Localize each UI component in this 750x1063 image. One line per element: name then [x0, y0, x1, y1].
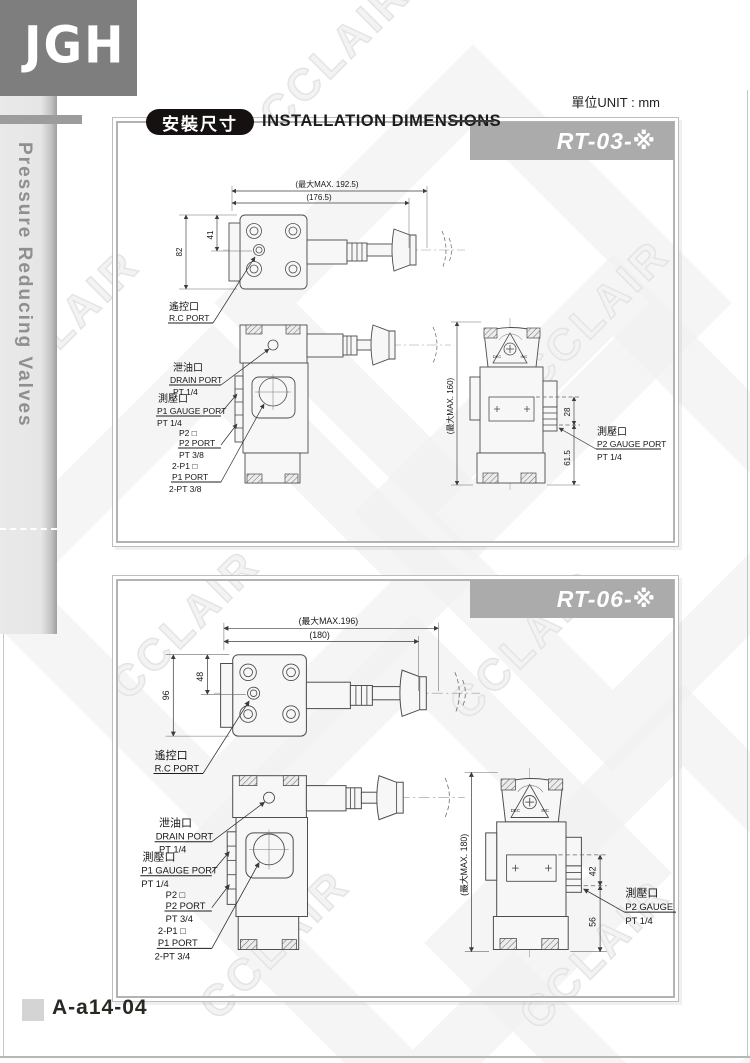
- dim-max-height: (最大MAX. 180): [458, 834, 469, 896]
- logo: JGH: [24, 16, 125, 75]
- p2-gauge-label-zh: 測壓口: [597, 425, 627, 438]
- dim-height-2: 41: [206, 230, 215, 239]
- doc-number: A-a14-04: [52, 996, 148, 1020]
- knob-dec-label: DEC: [493, 354, 502, 359]
- dim-port-offset: 42: [588, 866, 598, 876]
- panel-rt03: RT-03-※: [112, 117, 679, 547]
- dim-max-height: (最大MAX. 160): [445, 377, 455, 434]
- side-view: DEC INC: [445, 318, 666, 490]
- p1-port-size: 2-PT 3/4: [155, 951, 191, 961]
- p2-port-label-sym: P2 □: [179, 428, 197, 438]
- p2-gauge-size: PT 1/4: [625, 916, 652, 926]
- doc-number-marker: [22, 999, 44, 1021]
- technical-drawing: (最大MAX. 192.5) (176.5) 82 41 遙控口 R.C POR…: [113, 118, 676, 539]
- p1-port-size: 2-PT 3/8: [169, 484, 202, 494]
- drain-port-label-en: DRAIN PORT: [170, 375, 222, 385]
- page-right-rule: [747, 90, 748, 1057]
- dim-port-offset: 28: [563, 407, 572, 416]
- front-view: 泄油口 DRAIN PORT PT 1/4 測壓口 P1 GAUGE PORT …: [156, 325, 451, 494]
- unit-label: 單位UNIT : mm: [520, 92, 660, 111]
- section-title-pill: 安裝尺寸: [146, 109, 254, 135]
- p1-gauge-size: PT 1/4: [141, 879, 168, 889]
- p2-port-label-en: P2 PORT: [166, 901, 206, 911]
- knob-dec-label: DEC: [511, 808, 520, 813]
- dim-max-width: (最大MAX.196): [299, 615, 359, 626]
- top-view: (最大MAX. 192.5) (176.5) 82 41 遙控口 R.C POR…: [168, 179, 465, 323]
- dim-max-width: (最大MAX. 192.5): [295, 179, 358, 189]
- side-view: DEC INC: [458, 768, 676, 957]
- p1-gauge-size: PT 1/4: [157, 418, 182, 428]
- sidebar-category-title: Pressure Reducing Valves: [13, 142, 35, 428]
- p1-gauge-label-en: P1 GAUGE PORT: [141, 866, 217, 876]
- catalog-page: CCLAIR CCLAIR CCLAIR CCLAIR CCLAIR CCLAI…: [0, 0, 750, 1063]
- dim-height-2: 48: [195, 672, 205, 682]
- logo-box: JGH: [0, 0, 137, 96]
- p1-port-label-en: P1 PORT: [158, 938, 198, 948]
- drawing-root: (最大MAX. 192.5) (176.5) 82 41 遙控口 R.C POR…: [156, 179, 666, 494]
- p1-port-label-sym: 2-P1 □: [172, 461, 197, 471]
- dim-port-height: 56: [588, 917, 598, 927]
- p2-port-size: PT 3/8: [179, 450, 204, 460]
- drawing-root: (最大MAX.196) (180) 96 48 遙控口 R.C PORT: [140, 615, 676, 962]
- p1-gauge-label-en: P1 GAUGE PORT: [157, 406, 226, 416]
- technical-drawing: (最大MAX.196) (180) 96 48 遙控口 R.C PORT: [113, 576, 676, 1001]
- drain-port-label-en: DRAIN PORT: [156, 832, 214, 842]
- p2-port-size: PT 3/4: [166, 914, 193, 924]
- p1-gauge-label-zh: 測壓口: [158, 392, 188, 405]
- panel-rt06: RT-06-※: [112, 575, 679, 1002]
- rc-port-label-en: R.C PORT: [169, 313, 209, 323]
- p2-port-label-en: P2 PORT: [179, 438, 215, 448]
- p2-gauge-label-en: P2 GAUGE PORT: [597, 439, 666, 449]
- p1-port-label-en: P1 PORT: [172, 472, 208, 482]
- rc-port-label-zh: 遙控口: [169, 300, 199, 313]
- title-connector-line: [450, 120, 494, 122]
- p2-gauge-label-en: P2 GAUGE PORT: [625, 902, 676, 912]
- knob-inc-label: INC: [541, 808, 549, 813]
- sidebar-top-bar: [0, 115, 82, 124]
- p2-gauge-label-zh: 測壓口: [625, 886, 658, 900]
- p2-gauge-size: PT 1/4: [597, 452, 622, 462]
- dim-width: (176.5): [306, 193, 332, 202]
- sidebar-dashed-divider: [0, 528, 57, 530]
- rc-port-label-zh: 遙控口: [155, 748, 188, 762]
- dim-port-height: 61.5: [563, 450, 572, 466]
- top-view: (最大MAX.196) (180) 96 48 遙控口 R.C PORT: [154, 615, 481, 774]
- dim-height: 96: [161, 690, 171, 700]
- front-view: 泄油口 DRAIN PORT PT 1/4 測壓口 P1 GAUGE PORT …: [140, 776, 465, 962]
- drain-port-label-zh: 泄油口: [173, 361, 203, 374]
- rc-port-label-en: R.C PORT: [155, 763, 200, 773]
- dim-width: (180): [309, 630, 330, 640]
- model-banner: RT-06-※: [470, 580, 674, 618]
- drain-port-label-zh: 泄油口: [159, 815, 192, 829]
- dim-height: 82: [175, 247, 184, 256]
- p1-gauge-label-zh: 測壓口: [143, 849, 176, 863]
- p1-port-label-sym: 2-P1 □: [158, 926, 186, 936]
- knob-inc-label: INC: [521, 354, 528, 359]
- page-bottom-rule: [0, 1056, 750, 1058]
- p2-port-label-sym: P2 □: [166, 890, 186, 900]
